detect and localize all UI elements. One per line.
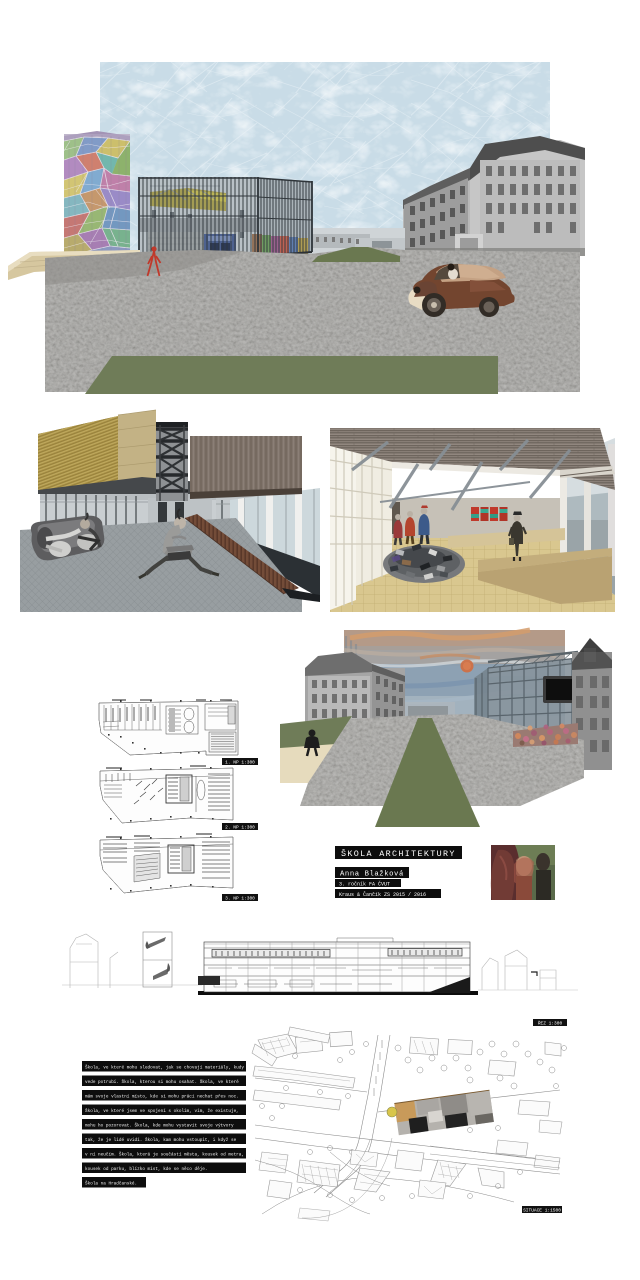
svg-text:1. NP 1:300: 1. NP 1:300 [225,760,255,766]
svg-text:Škola na Hradčanské.: Škola na Hradčanské. [85,1182,137,1187]
svg-text:Škola, ve které mohu sledovat,: Škola, ve které mohu sledovat, jak se ch… [85,1066,244,1071]
svg-text:vede potrubí. Škola, kterou si: vede potrubí. Škola, kterou si mohu osah… [85,1080,239,1085]
svg-text:Kraus & Čančík ZS 2015 / 2016: Kraus & Čančík ZS 2015 / 2016 [339,891,426,898]
svg-text:3. ročník FA ČVUT: 3. ročník FA ČVUT [339,880,390,887]
svg-text:2. NP 1:300: 2. NP 1:300 [225,825,255,831]
svg-text:Anna Blažková: Anna Blažková [340,871,404,879]
svg-text:mám svoje vlastní místo, kde s: mám svoje vlastní místo, kde si mohu prá… [85,1095,239,1100]
svg-text:Škola, ve které jsem ve spojen: Škola, ve které jsem ve spojení s okolím… [85,1109,239,1114]
svg-text:3. NP 1:300: 3. NP 1:300 [225,896,255,902]
svg-text:ŠKOLA ARCHITEKTURY: ŠKOLA ARCHITEKTURY [341,848,456,859]
svg-text:mohu ho pozorovat. Škola, kde: mohu ho pozorovat. Škola, kde mohu vysta… [85,1124,234,1129]
svg-text:tak, že je lidé uvidí. Škola,: tak, že je lidé uvidí. Škola, kam mohu v… [85,1138,237,1143]
svg-text:v ní neučím. Škola, která je s: v ní neučím. Škola, která je součástí mě… [85,1153,244,1158]
svg-text:ŘEZ 1:300: ŘEZ 1:300 [538,1020,563,1027]
svg-text:kousek od parku, blízko míst,: kousek od parku, blízko míst, kde se něc… [85,1167,208,1172]
svg-text:SITUACE 1:1500: SITUACE 1:1500 [523,1208,561,1214]
